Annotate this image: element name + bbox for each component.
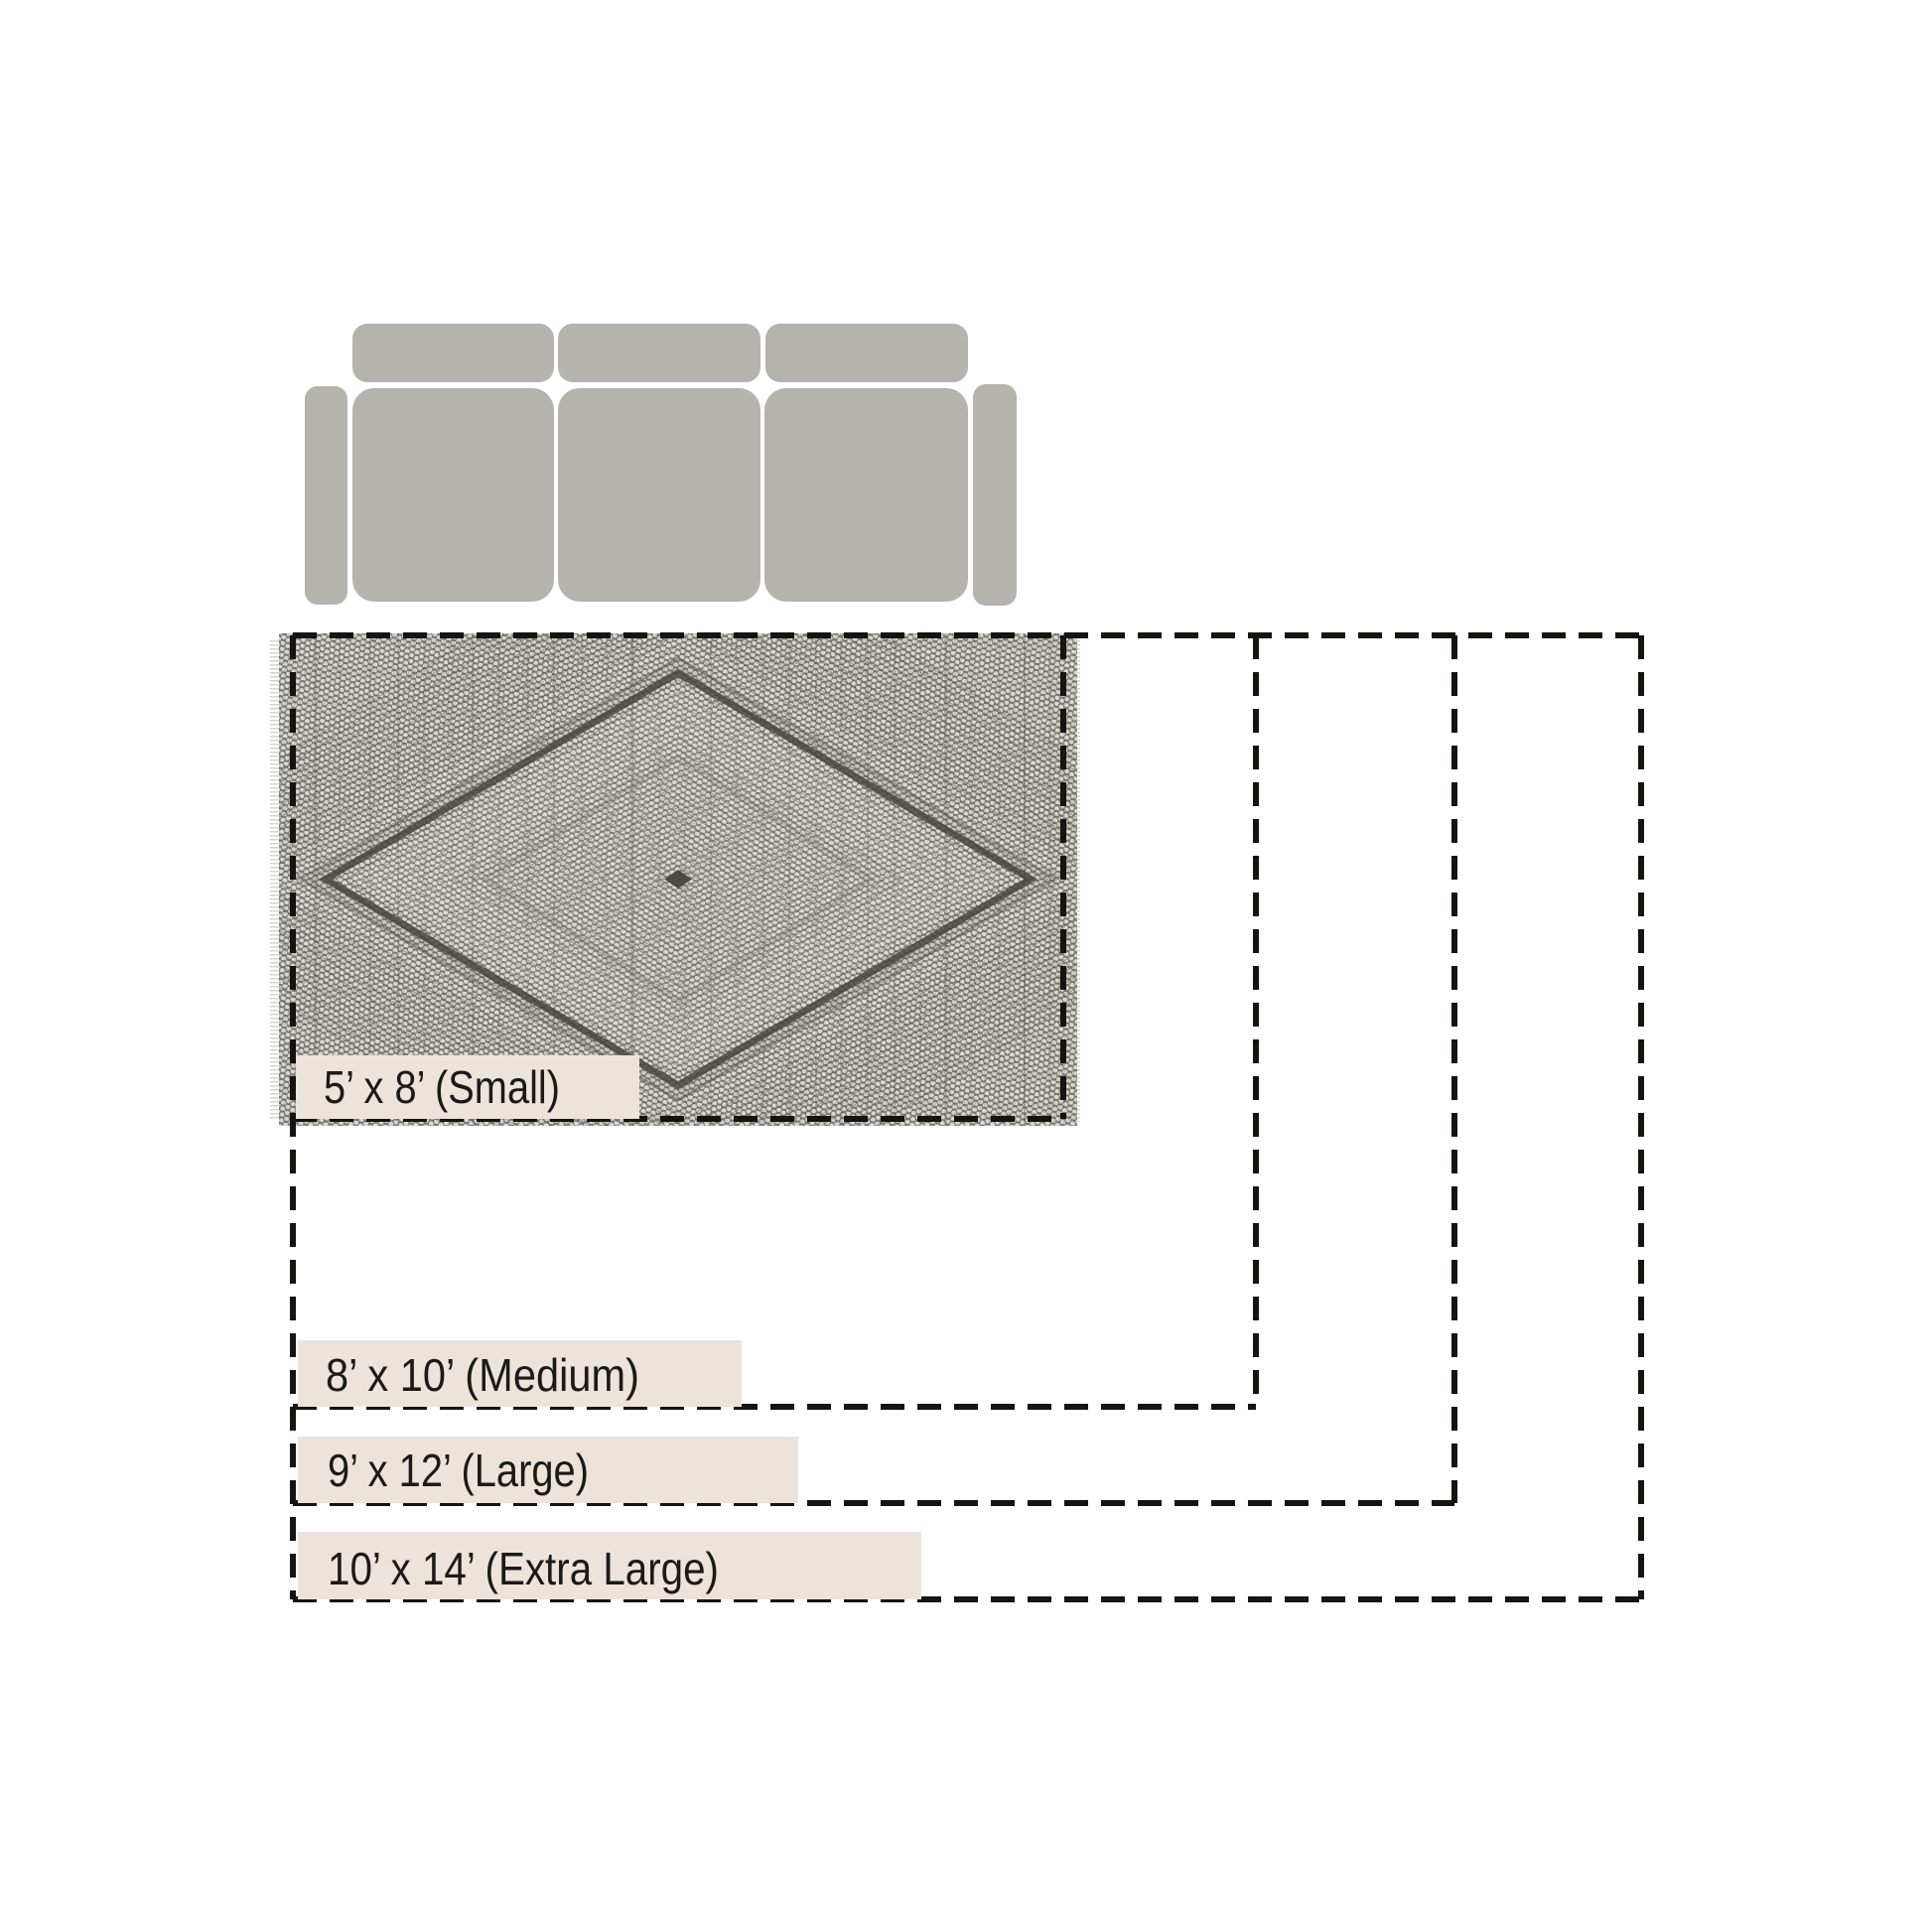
svg-text:8’ x 10’ (Medium): 8’ x 10’ (Medium) — [326, 1349, 639, 1401]
svg-text:10’ x 14’ (Extra Large): 10’ x 14’ (Extra Large) — [328, 1543, 719, 1594]
svg-text:9’ x 12’ (Large): 9’ x 12’ (Large) — [328, 1444, 589, 1496]
svg-text:5’ x 8’ (Small): 5’ x 8’ (Small) — [324, 1061, 560, 1113]
